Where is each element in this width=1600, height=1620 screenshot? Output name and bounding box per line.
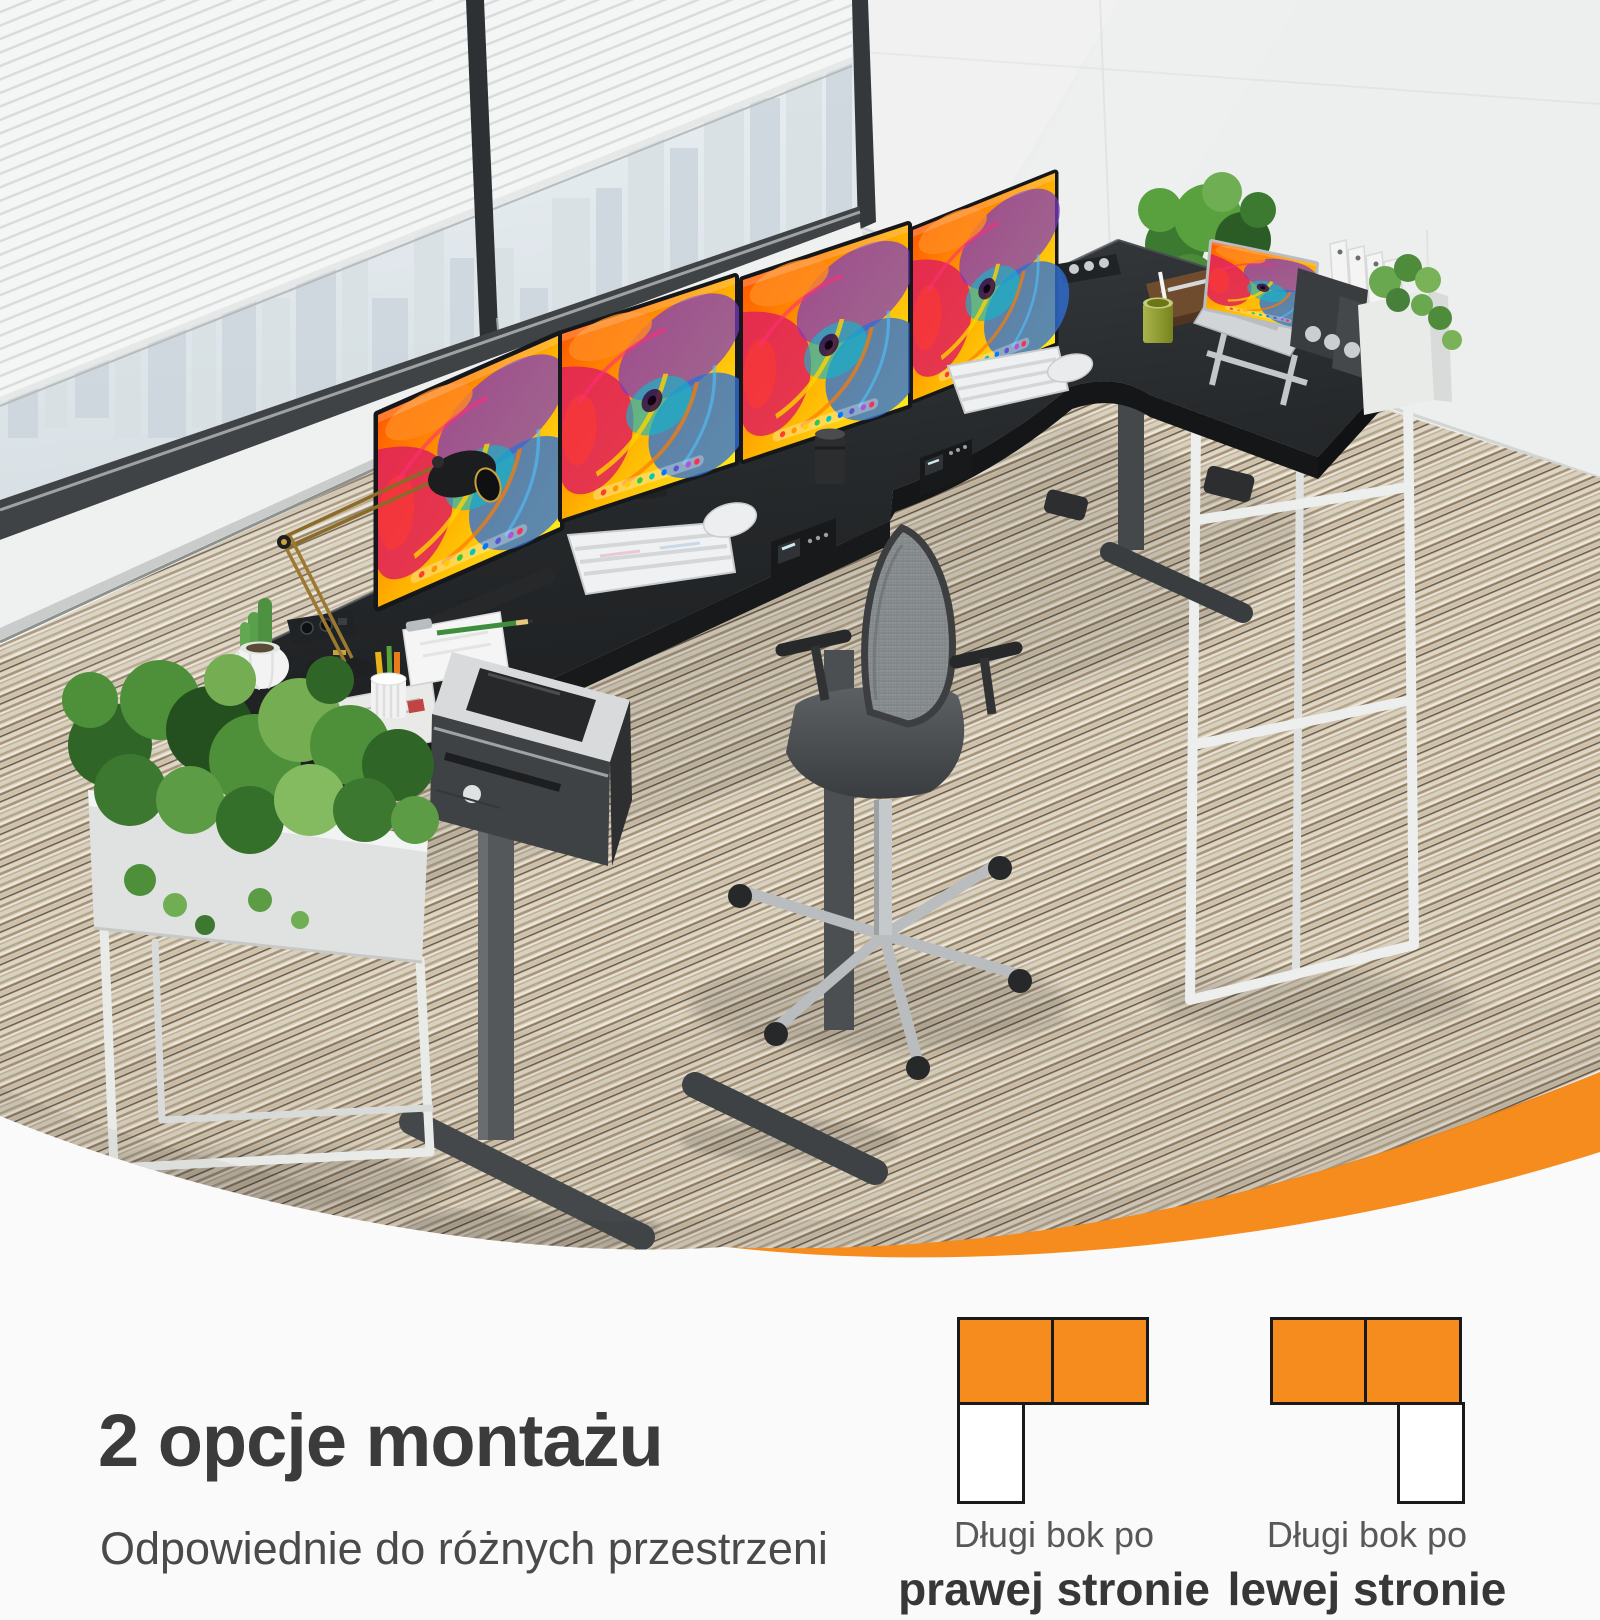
diagram-orange-cell [1364, 1317, 1462, 1405]
caption-heading: 2 opcje montażu [98, 1398, 858, 1483]
diagram-orange-cell [957, 1317, 1054, 1405]
diagram-label-right: Długi bok po prawej stronie [884, 1512, 1224, 1620]
diagram-label-left: Długi bok po lewej stronie [1197, 1512, 1537, 1620]
diagram-label-line1: Długi bok po [954, 1514, 1154, 1555]
diagram-orange-cell [1270, 1317, 1367, 1405]
diagram-white-cell [1397, 1402, 1465, 1504]
diagram-label-line2: lewej stronie [1197, 1558, 1537, 1620]
desk-leg-corner [1118, 400, 1144, 550]
diagram-white-cell [957, 1402, 1025, 1504]
diagram-orange-cell [1051, 1317, 1149, 1405]
caption-subtitle: Odpowiednie do różnych przestrzeni [100, 1523, 1000, 1575]
diagram-long-top-bar [1270, 1317, 1462, 1405]
diagram-label-line2: prawej stronie [884, 1558, 1224, 1620]
diagram-long-top-bar [957, 1317, 1149, 1405]
coffee-cup [815, 429, 845, 485]
product-marketing-image: { "colors": { "accent": "#f68b1e", "back… [0, 0, 1600, 1600]
diagram-label-line1: Długi bok po [1267, 1514, 1467, 1555]
diagram-long-side-right [957, 1317, 1152, 1507]
diagram-long-side-left [1270, 1317, 1465, 1507]
